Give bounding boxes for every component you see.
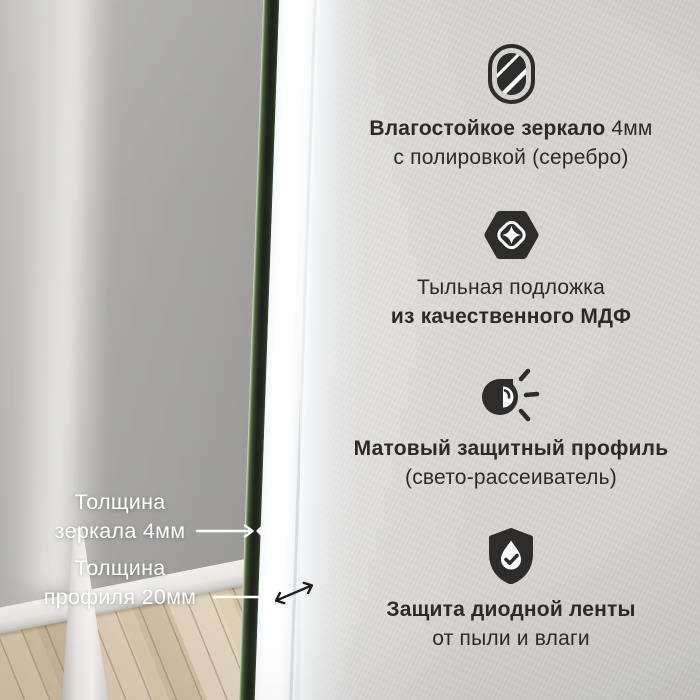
text-segment: Защита диодной ленты xyxy=(386,598,635,621)
text-segment: (свето-рассеиватель) xyxy=(405,466,617,489)
feature-line-2: (свето-рассеиватель) xyxy=(351,464,671,493)
feature-line-1: Тыльная подложка xyxy=(351,274,671,303)
led-mirror-infographic: Влагостойкое зеркало 4мм с полировкой (с… xyxy=(0,0,700,700)
feature-line-1: Влагостойкое зеркало 4мм xyxy=(351,115,671,144)
feature-line-1: Защита диодной ленты xyxy=(351,596,671,625)
measurement-label-profile-thickness: Толщина профиля 20мм xyxy=(20,554,220,612)
text-segment: с полировкой (серебро) xyxy=(393,146,628,169)
measurement-line: профиля 20мм xyxy=(20,583,220,612)
feature-line-2: из качественного МДФ xyxy=(351,303,671,332)
measurement-line: Толщина xyxy=(20,554,220,583)
led-protection-shield-icon xyxy=(486,528,536,584)
measurement-label-mirror-thickness: Толщина зеркала 4мм xyxy=(20,488,220,546)
text-segment: из качественного МДФ xyxy=(391,305,631,328)
mirror-glass-icon xyxy=(488,44,535,104)
light-diffuser-icon xyxy=(477,362,545,426)
feature-line-1: Матовый защитный профиль xyxy=(351,435,671,464)
mdf-backing-icon xyxy=(483,208,540,262)
feature-list: Влагостойкое зеркало 4мм с полировкой (с… xyxy=(351,0,671,653)
text-segment: Влагостойкое зеркало xyxy=(369,117,605,140)
text-segment: Матовый защитный профиль xyxy=(354,437,669,460)
feature-line-2: от пыли и влаги xyxy=(351,625,671,654)
measurement-line: Толщина xyxy=(20,488,220,517)
text-segment: Тыльная подложка xyxy=(417,276,605,299)
text-segment: 4мм xyxy=(605,117,652,140)
feature-text-led: Защита диодной ленты от пыли и влаги xyxy=(351,596,671,653)
feature-text-mirror: Влагостойкое зеркало 4мм с полировкой (с… xyxy=(351,115,671,172)
text-segment: от пыли и влаги xyxy=(432,627,590,650)
feature-text-mdf: Тыльная подложка из качественного МДФ xyxy=(351,274,671,331)
feature-line-2: с полировкой (серебро) xyxy=(351,144,671,173)
feature-text-profile: Матовый защитный профиль (свето-рассеива… xyxy=(351,435,671,492)
measurement-line: зеркала 4мм xyxy=(20,517,220,546)
